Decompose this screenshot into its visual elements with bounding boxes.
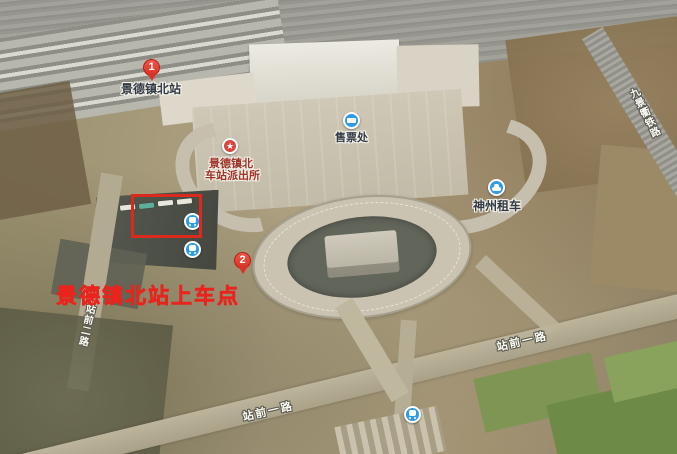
pickup-point-annotation: 景德镇北站上车点: [56, 280, 240, 310]
car-rental-label: 神州租车: [473, 197, 521, 214]
police-station-icon[interactable]: ★: [222, 138, 238, 154]
map-marker-2[interactable]: 2: [234, 252, 251, 269]
car-rental-icon[interactable]: [488, 179, 505, 196]
satellite-map[interactable]: 1 景德镇北站 售票处 ★ 景德镇北 车站派出所 神州租车 2 景德镇北站上车点…: [0, 0, 677, 454]
police-station-label-line2: 车站派出所: [205, 167, 260, 183]
marker-2-number: 2: [239, 254, 245, 266]
loop-center-structure: [324, 230, 399, 278]
police-badge-glyph: ★: [226, 141, 234, 151]
pickup-area-rectangle: [131, 194, 202, 238]
map-marker-1[interactable]: 1: [143, 59, 160, 76]
marker-1-number: 1: [148, 61, 154, 73]
greenhouse-rows: [334, 406, 446, 454]
bus-stop-icon[interactable]: [404, 406, 421, 423]
east-exit-road: [475, 255, 559, 335]
ticket-office-icon[interactable]: [343, 112, 360, 129]
ticket-office-label: 售票处: [335, 129, 368, 145]
bus-stop-icon[interactable]: [184, 241, 201, 258]
